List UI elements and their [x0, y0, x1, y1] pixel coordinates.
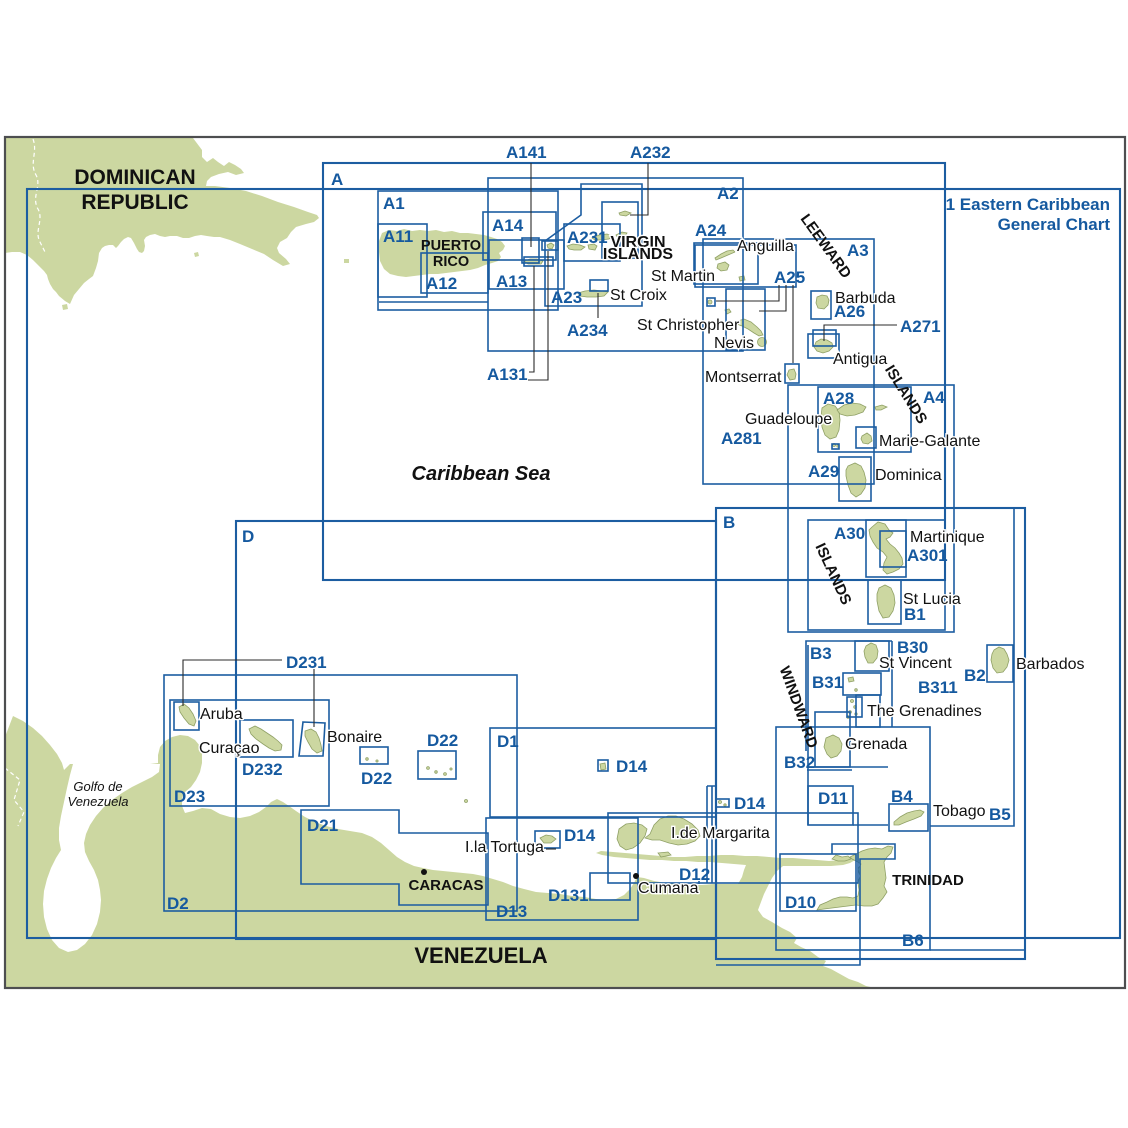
svg-text:The Grenadines: The Grenadines [867, 703, 982, 720]
svg-text:A1: A1 [383, 194, 405, 213]
svg-text:D22: D22 [427, 731, 458, 750]
svg-text:REPUBLIC: REPUBLIC [81, 191, 188, 214]
svg-text:B3: B3 [810, 644, 832, 663]
svg-text:Curaçao: Curaçao [199, 740, 260, 757]
svg-text:D12: D12 [679, 865, 710, 884]
svg-text:A2: A2 [717, 184, 739, 203]
svg-text:Nevis: Nevis [714, 335, 754, 352]
svg-text:A: A [331, 170, 343, 189]
svg-text:St Croix: St Croix [610, 287, 667, 304]
svg-text:B6: B6 [902, 931, 924, 950]
svg-text:Tobago: Tobago [933, 803, 986, 820]
svg-text:St Christopher: St Christopher [637, 317, 740, 334]
svg-text:A234: A234 [567, 321, 608, 340]
svg-text:Barbados: Barbados [1016, 656, 1085, 673]
svg-text:St Martin: St Martin [651, 268, 715, 285]
svg-text:A12: A12 [426, 274, 457, 293]
svg-text:D1: D1 [497, 732, 519, 751]
svg-text:Venezuela: Venezuela [68, 794, 129, 809]
svg-text:B311: B311 [918, 678, 958, 697]
svg-text:A301: A301 [907, 546, 948, 565]
svg-text:1 Eastern Caribbean: 1 Eastern Caribbean [946, 195, 1110, 214]
svg-text:St Lucia: St Lucia [903, 591, 961, 608]
svg-text:D2: D2 [167, 894, 189, 913]
svg-text:St Vincent: St Vincent [879, 655, 952, 672]
svg-text:RICO: RICO [433, 254, 469, 270]
svg-text:B31: B31 [812, 673, 843, 692]
svg-text:A23: A23 [551, 288, 582, 307]
svg-text:D10: D10 [785, 893, 816, 912]
svg-text:A131: A131 [487, 365, 528, 384]
svg-text:I.la Tortuga: I.la Tortuga [465, 839, 544, 856]
svg-text:D22: D22 [361, 769, 392, 788]
svg-text:D231: D231 [286, 653, 327, 672]
svg-text:Guadeloupe: Guadeloupe [745, 411, 832, 428]
svg-text:VENEZUELA: VENEZUELA [414, 943, 547, 968]
svg-text:Bonaire: Bonaire [327, 729, 382, 746]
svg-text:Marie-Galante: Marie-Galante [879, 433, 980, 450]
svg-text:B5: B5 [989, 805, 1011, 824]
svg-text:B4: B4 [891, 787, 913, 806]
svg-text:Montserrat: Montserrat [705, 369, 782, 386]
svg-text:Antigua: Antigua [833, 351, 887, 368]
svg-text:Barbuda: Barbuda [835, 290, 896, 307]
svg-text:B32: B32 [784, 753, 815, 772]
svg-text:D131: D131 [548, 886, 589, 905]
svg-text:A11: A11 [383, 227, 413, 246]
svg-text:D11: D11 [818, 789, 848, 808]
svg-text:D232: D232 [242, 760, 283, 779]
svg-text:Grenada: Grenada [845, 736, 907, 753]
svg-text:PUERTO: PUERTO [421, 238, 481, 254]
svg-text:General Chart: General Chart [998, 215, 1111, 234]
svg-text:D14: D14 [734, 794, 766, 813]
svg-text:A141: A141 [506, 143, 547, 162]
svg-text:A3: A3 [847, 241, 869, 260]
svg-text:A30: A30 [834, 524, 865, 543]
svg-text:A28: A28 [823, 389, 854, 408]
svg-text:A271: A271 [900, 317, 941, 336]
svg-text:D14: D14 [564, 826, 596, 845]
svg-text:A4: A4 [923, 388, 945, 407]
svg-text:A281: A281 [721, 429, 762, 448]
svg-text:TRINIDAD: TRINIDAD [892, 872, 964, 889]
svg-text:Dominica: Dominica [875, 467, 942, 484]
svg-text:D13: D13 [496, 902, 527, 921]
svg-text:D21: D21 [307, 816, 338, 835]
svg-text:Caribbean Sea: Caribbean Sea [412, 463, 551, 485]
svg-text:D23: D23 [174, 787, 205, 806]
svg-text:CARACAS: CARACAS [409, 877, 484, 894]
svg-text:I.de Margarita: I.de Margarita [671, 825, 770, 842]
svg-text:A29: A29 [808, 462, 839, 481]
svg-text:DOMINICAN: DOMINICAN [74, 166, 195, 189]
svg-text:A25: A25 [774, 268, 805, 287]
svg-text:D: D [242, 527, 254, 546]
svg-text:A24: A24 [695, 221, 727, 240]
svg-text:A231: A231 [567, 228, 608, 247]
svg-text:ISLANDS: ISLANDS [603, 246, 674, 263]
svg-text:A13: A13 [496, 272, 527, 291]
svg-text:Anguilla: Anguilla [737, 238, 794, 255]
svg-text:Golfo de: Golfo de [73, 779, 122, 794]
svg-text:D14: D14 [616, 757, 648, 776]
svg-text:A14: A14 [492, 216, 524, 235]
svg-text:A232: A232 [630, 143, 671, 162]
svg-text:B: B [723, 513, 735, 532]
svg-text:Martinique: Martinique [910, 529, 985, 546]
svg-text:B2: B2 [964, 666, 986, 685]
svg-text:Aruba: Aruba [200, 706, 243, 723]
